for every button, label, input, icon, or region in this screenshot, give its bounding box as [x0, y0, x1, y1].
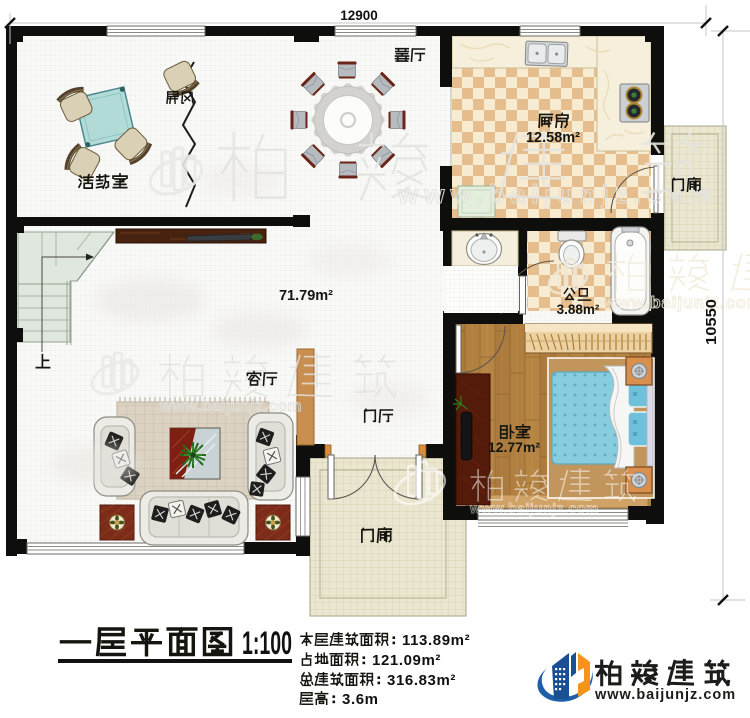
- svg-text:www.baijunjz.com: www.baijunjz.com: [159, 398, 302, 415]
- svg-text:3.88m²: 3.88m²: [557, 302, 600, 317]
- svg-text:71.79m²: 71.79m²: [279, 288, 333, 304]
- svg-text:12900: 12900: [340, 8, 378, 23]
- svg-text:113.89m²: 113.89m²: [402, 632, 470, 649]
- svg-text:www.baijunjz.com: www.baijunjz.com: [397, 179, 718, 209]
- svg-text:12.77m²: 12.77m²: [488, 439, 540, 455]
- svg-text:3.6m: 3.6m: [342, 691, 379, 708]
- svg-text:www.baijunjz.com: www.baijunjz.com: [594, 687, 736, 703]
- svg-text:121.09m²: 121.09m²: [372, 652, 441, 669]
- svg-text:10550: 10550: [703, 299, 720, 345]
- svg-text:www.baijunjz.com: www.baijunjz.com: [469, 500, 599, 516]
- svg-text:316.83m²: 316.83m²: [387, 672, 456, 689]
- svg-text:12.58m²: 12.58m²: [526, 130, 580, 146]
- svg-text:www.baijunjz.com: www.baijunjz.com: [603, 294, 750, 312]
- svg-text:1:100: 1:100: [242, 625, 292, 661]
